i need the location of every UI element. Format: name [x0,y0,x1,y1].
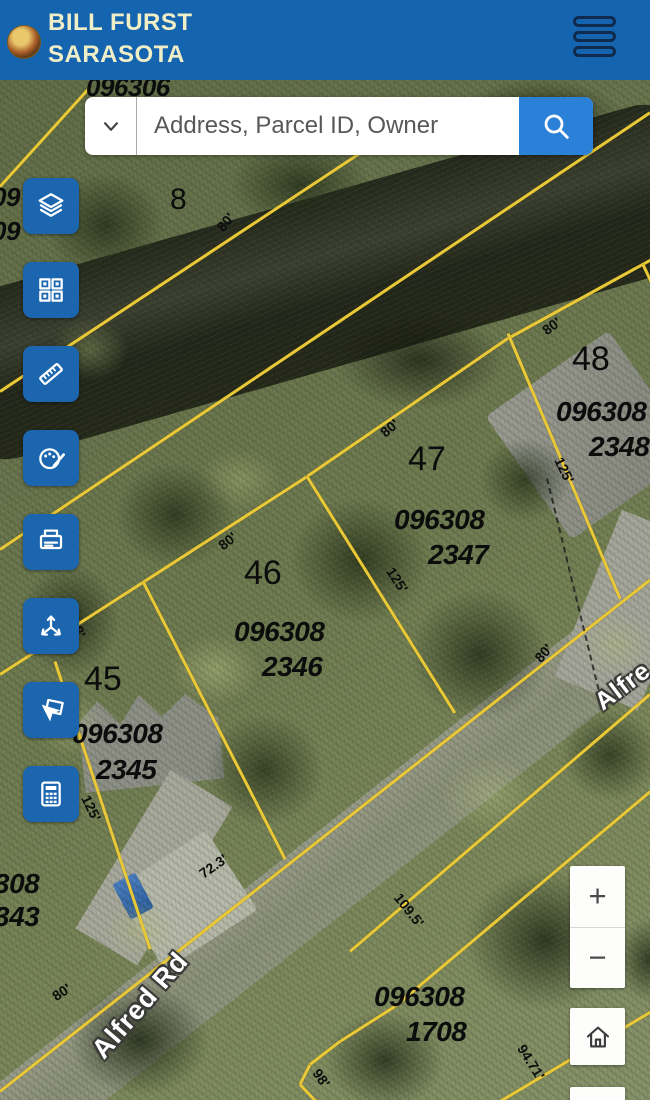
home-icon [583,1022,613,1052]
calculator-icon [35,778,67,810]
zoom-out-button[interactable]: − [570,927,625,989]
parcel-id-label: 2345 [96,754,156,786]
select-button[interactable] [23,682,79,738]
search-type-dropdown[interactable] [85,97,137,155]
parcel-id-label: 2348 [589,431,649,463]
parcel-id-label-partial: 09 [0,182,20,213]
aerial-map[interactable]: 8 45 46 47 48 096308 2347 096308 2346 09… [0,0,650,1100]
directions-icon [35,610,67,642]
draw-button[interactable] [23,430,79,486]
app-title: BILL FURST SARASOTA [48,7,193,71]
basemap-button[interactable] [23,262,79,318]
parcel-id-label: 2347 [428,539,488,571]
app-window: 8 45 46 47 48 096308 2347 096308 2346 09… [0,0,650,1100]
menu-bar [573,16,616,27]
basemap-grid-icon [35,274,67,306]
select-features-icon [35,694,67,726]
lot-number: 47 [408,440,446,479]
search-placeholder: Address, Parcel ID, Owner [154,112,438,140]
layers-icon [35,190,67,222]
parcel-id-label: 1708 [406,1016,466,1048]
app-title-line2: SARASOTA [48,39,193,71]
search-icon [540,110,572,142]
search-input[interactable]: Address, Parcel ID, Owner [137,97,519,155]
directions-button[interactable] [23,598,79,654]
lot-number: 8 [170,183,187,217]
parcel-id-label: 096308 [72,718,162,750]
parcel-id-label-partial: 308 [0,868,39,900]
app-title-line1: BILL FURST [48,7,193,39]
print-button[interactable] [23,514,79,570]
zoom-controls: + − [570,866,625,988]
menu-bar [573,46,616,57]
county-seal-logo [7,25,41,59]
foliage-speckle-texture [0,0,650,1100]
home-extent-button[interactable] [570,1008,625,1065]
lot-number: 45 [84,660,122,699]
calculator-button[interactable] [23,766,79,822]
parcel-id-label: 096308 [234,616,324,648]
menu-bar [573,31,616,42]
layers-button[interactable] [23,178,79,234]
parcel-id-label-partial: 09 [0,216,20,247]
search-button[interactable] [519,97,593,155]
measure-button[interactable] [23,346,79,402]
parcel-id-label: 096308 [556,396,646,428]
print-icon [35,526,67,558]
parcel-id-label: 096308 [374,981,464,1013]
lot-number: 48 [572,340,610,379]
zoom-in-button[interactable]: + [570,866,625,927]
parcel-id-label-partial: 343 [0,901,39,933]
app-header: BILL FURST SARASOTA [0,0,650,80]
chevron-down-icon [98,113,124,139]
parcel-id-label: 096308 [394,504,484,536]
parcel-id-label: 2346 [262,651,322,683]
draw-palette-icon [35,442,67,474]
hamburger-menu-icon[interactable] [573,16,616,61]
measure-ruler-icon [35,358,67,390]
search-bar: Address, Parcel ID, Owner [85,97,593,155]
clipped-map-button[interactable] [570,1087,625,1100]
lot-number: 46 [244,554,282,593]
